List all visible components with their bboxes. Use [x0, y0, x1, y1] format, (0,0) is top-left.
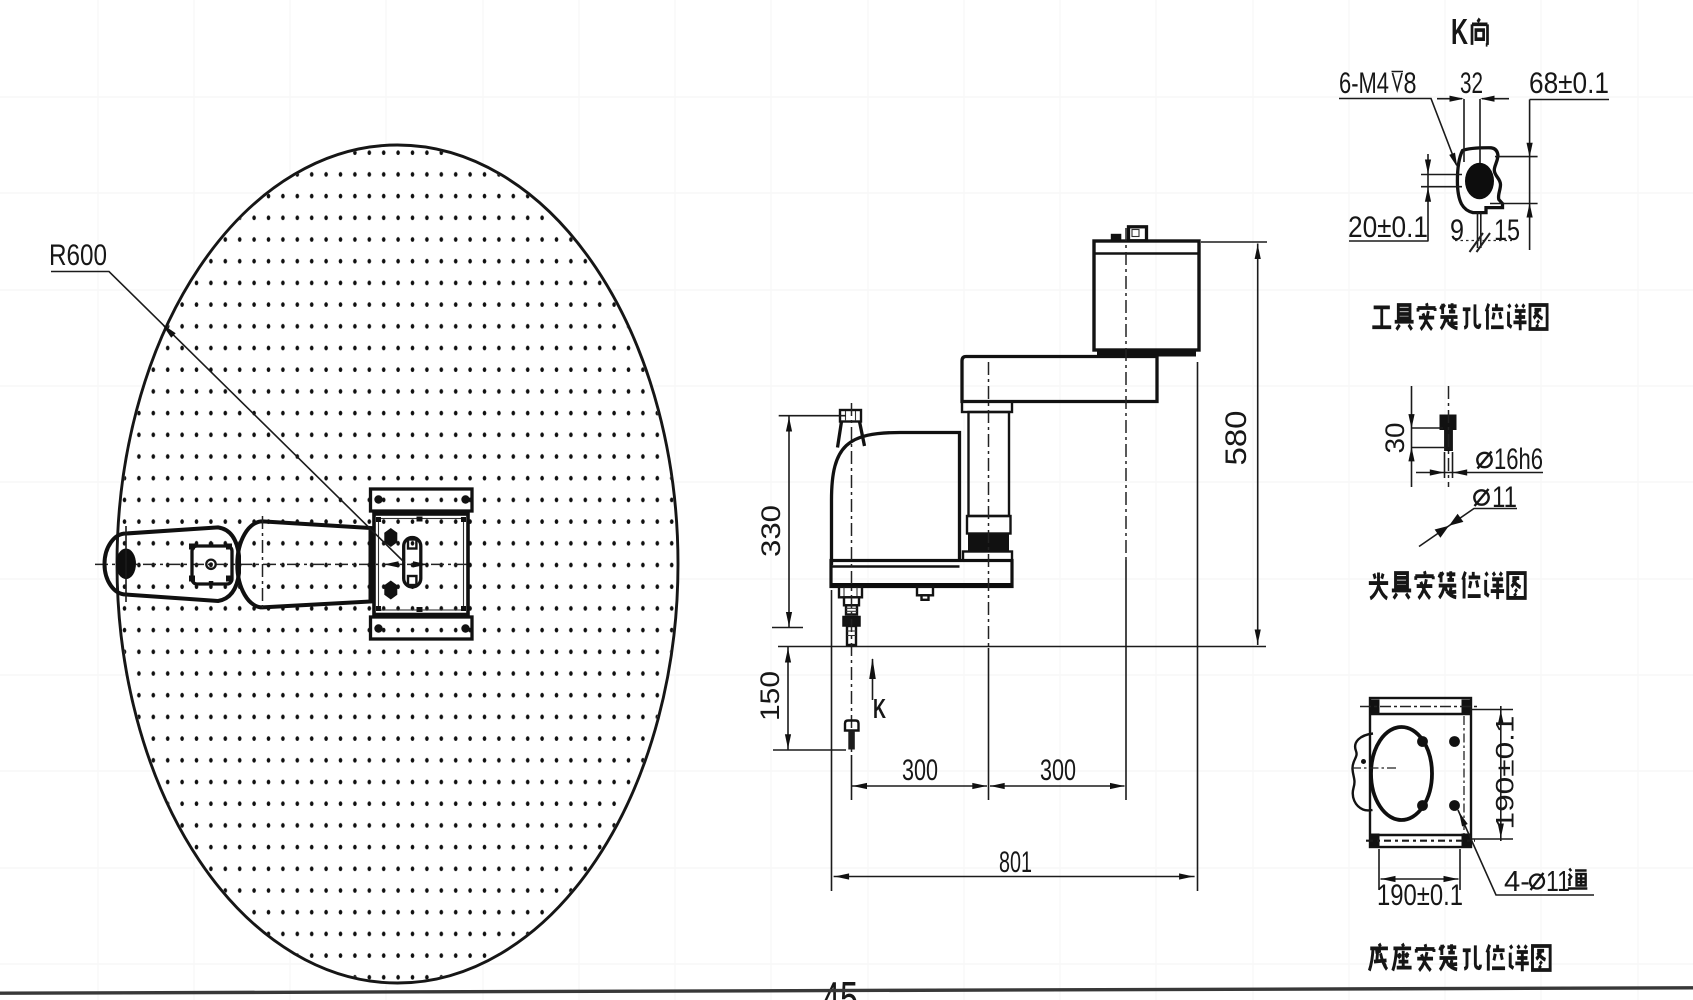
svg-text:330: 330 — [756, 505, 786, 557]
svg-text:30: 30 — [1380, 423, 1410, 454]
svg-text:68±0.1: 68±0.1 — [1529, 67, 1609, 100]
svg-text:20±0.1: 20±0.1 — [1348, 211, 1428, 244]
svg-text:45: 45 — [822, 972, 858, 1000]
svg-text:801: 801 — [999, 846, 1032, 879]
svg-text:150: 150 — [755, 671, 785, 721]
svg-text:190±0.1: 190±0.1 — [1377, 879, 1463, 912]
svg-text:K: K — [873, 693, 886, 724]
svg-text:300: 300 — [1040, 754, 1076, 787]
svg-text:K: K — [1451, 11, 1468, 52]
svg-text:9: 9 — [1450, 214, 1464, 247]
svg-text:R600: R600 — [49, 239, 107, 272]
svg-text:6-M4: 6-M4 — [1339, 67, 1389, 100]
svg-text:4-: 4- — [1504, 866, 1530, 898]
svg-text:15: 15 — [1494, 214, 1520, 247]
svg-text:32: 32 — [1460, 67, 1483, 100]
svg-text:11: 11 — [1546, 866, 1570, 898]
svg-text:190±0.1: 190±0.1 — [1492, 716, 1520, 830]
svg-text:8: 8 — [1404, 67, 1417, 100]
svg-text:300: 300 — [902, 754, 938, 787]
svg-text:16h6: 16h6 — [1494, 443, 1543, 476]
svg-text:580: 580 — [1220, 411, 1253, 466]
